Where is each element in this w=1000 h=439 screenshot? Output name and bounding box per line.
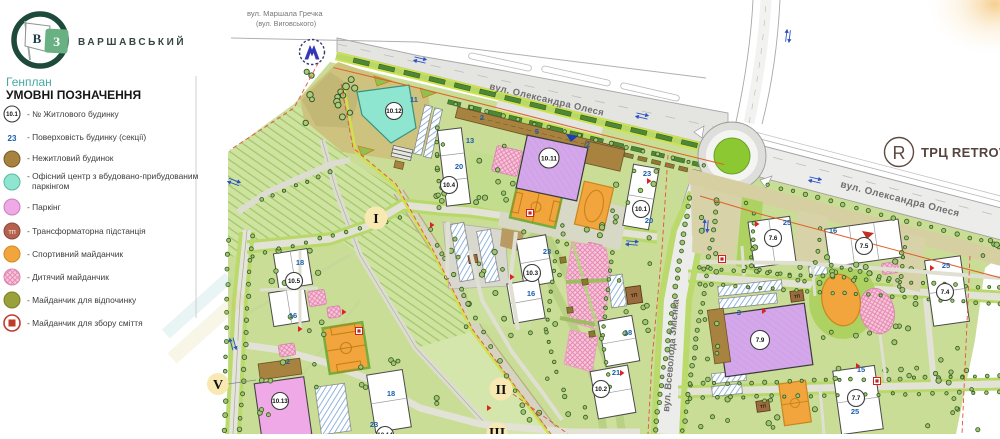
svg-text:10.5: 10.5: [288, 278, 301, 285]
svg-text:16: 16: [289, 311, 297, 320]
svg-text:- Майданчик для збору сміття: - Майданчик для збору сміття: [27, 318, 143, 328]
svg-text:(вул. Виговського): (вул. Виговського): [256, 19, 316, 28]
svg-text:10.13: 10.13: [272, 398, 288, 405]
svg-text:18: 18: [387, 389, 395, 398]
svg-text:ТП: ТП: [630, 293, 638, 300]
svg-text:2: 2: [586, 140, 590, 149]
svg-text:вул. Маршала Гречка: вул. Маршала Гречка: [247, 9, 323, 18]
svg-text:З: З: [53, 34, 60, 49]
svg-text:V: V: [213, 378, 223, 393]
svg-text:10.11: 10.11: [541, 155, 557, 162]
svg-text:7.7: 7.7: [852, 395, 861, 402]
svg-text:10.3: 10.3: [526, 270, 539, 277]
svg-text:20: 20: [645, 216, 653, 225]
svg-text:7.5: 7.5: [860, 243, 869, 250]
svg-text:25: 25: [783, 218, 791, 227]
svg-text:23: 23: [8, 134, 17, 143]
svg-text:2: 2: [286, 357, 290, 366]
svg-text:- Офісний центр з вбудовано-пр: - Офісний центр з вбудовано-прибудованим: [27, 171, 199, 181]
svg-text:10.12: 10.12: [386, 108, 402, 115]
svg-text:ТП: ТП: [8, 230, 15, 236]
svg-text:- № Житлового будинку: - № Житлового будинку: [27, 109, 119, 119]
svg-text:- Трансформаторна підстанція: - Трансформаторна підстанція: [27, 226, 146, 236]
svg-text:16: 16: [829, 226, 837, 235]
svg-text:паркінгом: паркінгом: [32, 181, 70, 191]
svg-text:II: II: [496, 383, 507, 398]
svg-text:10.1: 10.1: [6, 112, 18, 118]
svg-text:25: 25: [851, 407, 859, 416]
svg-text:10.2: 10.2: [595, 386, 608, 393]
svg-text:7.4: 7.4: [941, 289, 950, 296]
svg-text:ВАРШАВСЬКИЙ: ВАРШАВСЬКИЙ: [78, 35, 186, 48]
svg-text:Генплан: Генплан: [6, 75, 52, 89]
svg-text:11: 11: [410, 95, 418, 104]
svg-text:18: 18: [624, 328, 632, 337]
svg-text:5: 5: [535, 127, 539, 136]
svg-text:ТП: ТП: [794, 293, 801, 299]
svg-text:3: 3: [737, 308, 741, 317]
svg-text:13: 13: [466, 136, 474, 145]
svg-text:УМОВНІ ПОЗНАЧЕННЯ: УМОВНІ ПОЗНАЧЕННЯ: [6, 88, 141, 102]
svg-text:2: 2: [480, 113, 484, 122]
svg-text:- Паркінг: - Паркінг: [27, 202, 61, 212]
svg-text:10.1: 10.1: [635, 206, 648, 213]
svg-text:21: 21: [612, 368, 620, 377]
svg-text:- Дитячий майданчик: - Дитячий майданчик: [27, 272, 109, 282]
svg-text:7.9: 7.9: [756, 337, 765, 344]
svg-text:I: I: [373, 212, 378, 227]
svg-text:10.4: 10.4: [443, 182, 456, 189]
svg-text:- Спортивний майданчик: - Спортивний майданчик: [27, 249, 123, 259]
svg-text:III: III: [489, 426, 505, 434]
svg-text:R: R: [893, 143, 906, 163]
svg-text:25: 25: [942, 261, 950, 270]
svg-text:23: 23: [370, 420, 378, 429]
svg-text:23: 23: [543, 247, 551, 256]
svg-text:23: 23: [643, 169, 651, 178]
svg-text:В: В: [33, 31, 42, 46]
svg-text:18: 18: [296, 258, 304, 267]
svg-text:- Майданчик для відпочинку: - Майданчик для відпочинку: [27, 295, 137, 305]
svg-text:20: 20: [455, 162, 463, 171]
svg-text:16: 16: [527, 289, 535, 298]
svg-text:ТРЦ RETROVILLE: ТРЦ RETROVILLE: [921, 145, 1000, 160]
svg-text:- Поверховість будинку (секції: - Поверховість будинку (секції): [27, 132, 146, 142]
svg-text:15: 15: [857, 365, 865, 374]
svg-text:- Нежитловий будинок: - Нежитловий будинок: [27, 153, 114, 163]
svg-text:7.6: 7.6: [769, 235, 778, 242]
svg-text:ТП: ТП: [760, 403, 767, 409]
